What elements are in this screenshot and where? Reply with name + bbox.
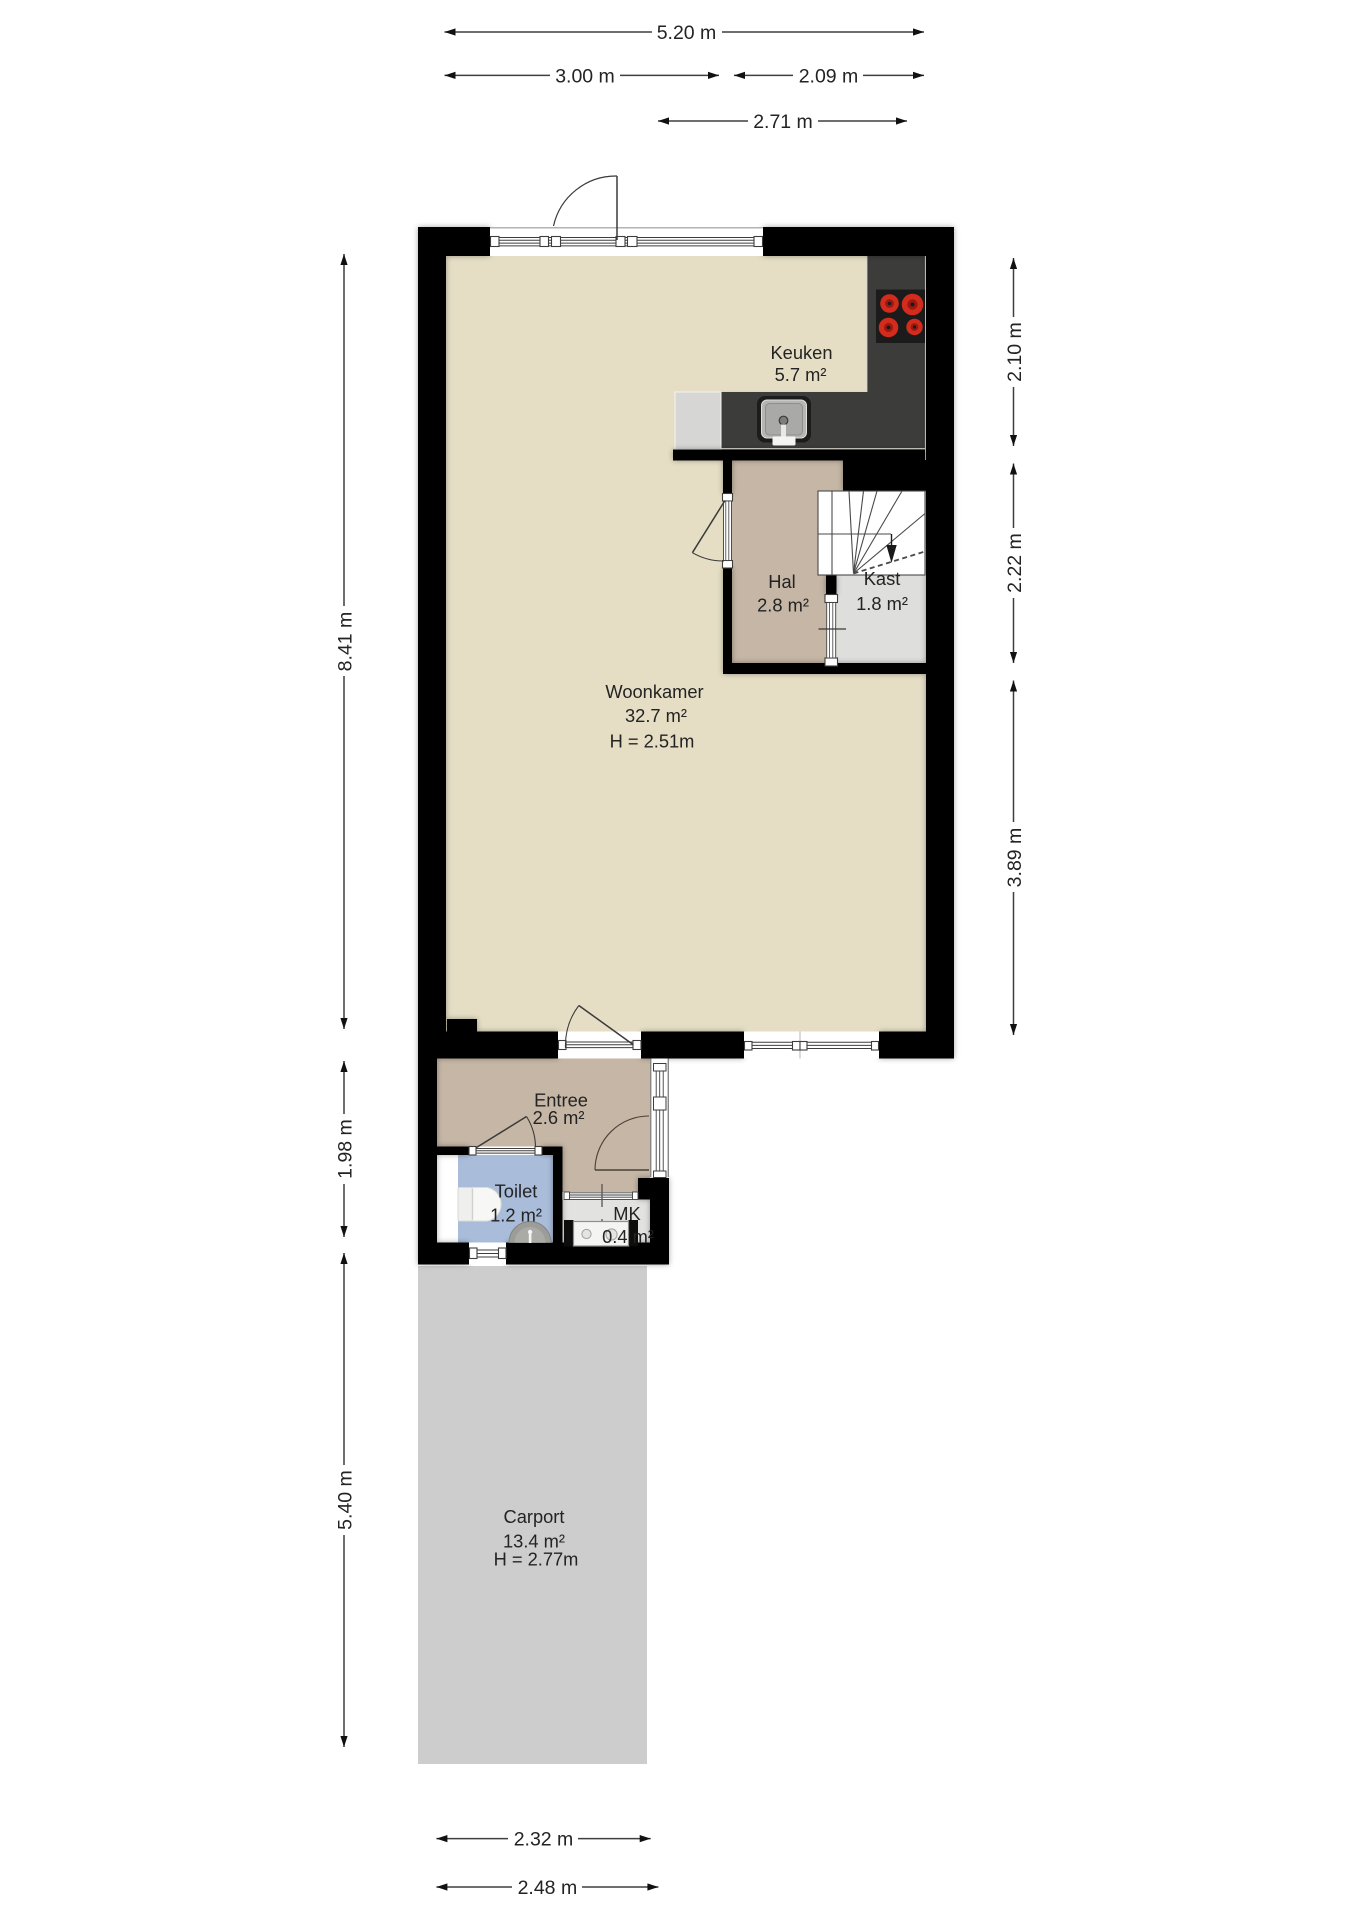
svg-text:2.22 m: 2.22 m [1004,533,1026,593]
svg-text:1.98 m: 1.98 m [335,1119,357,1179]
svg-text:Carport: Carport [504,1506,565,1527]
svg-text:2.48 m: 2.48 m [518,1877,578,1899]
svg-text:2.09 m: 2.09 m [799,66,859,88]
svg-text:1.2 m²: 1.2 m² [490,1205,542,1226]
svg-text:3.00 m: 3.00 m [555,66,615,88]
svg-text:2.6 m²: 2.6 m² [533,1107,585,1128]
svg-text:MK: MK [613,1203,640,1224]
svg-text:H = 2.77m: H = 2.77m [494,1549,579,1570]
svg-text:8.41 m: 8.41 m [335,612,357,672]
svg-text:32.7 m²: 32.7 m² [625,705,687,726]
svg-text:5.20 m: 5.20 m [657,22,717,44]
svg-text:H = 2.51m: H = 2.51m [610,731,695,752]
svg-text:2.10 m: 2.10 m [1004,322,1026,382]
svg-text:2.32 m: 2.32 m [514,1829,574,1851]
svg-text:2.71 m: 2.71 m [753,111,813,133]
svg-text:0.4 m²: 0.4 m² [602,1226,654,1247]
svg-text:5.7 m²: 5.7 m² [775,364,827,385]
svg-text:Kast: Kast [864,568,901,589]
svg-text:1.8 m²: 1.8 m² [856,593,908,614]
svg-text:3.89 m: 3.89 m [1004,828,1026,888]
svg-text:Woonkamer: Woonkamer [605,681,703,702]
svg-text:Toilet: Toilet [495,1181,538,1202]
svg-text:2.8 m²: 2.8 m² [757,595,809,616]
svg-text:Hal: Hal [768,571,795,592]
svg-text:5.40 m: 5.40 m [335,1470,357,1530]
svg-text:Keuken: Keuken [770,342,832,363]
